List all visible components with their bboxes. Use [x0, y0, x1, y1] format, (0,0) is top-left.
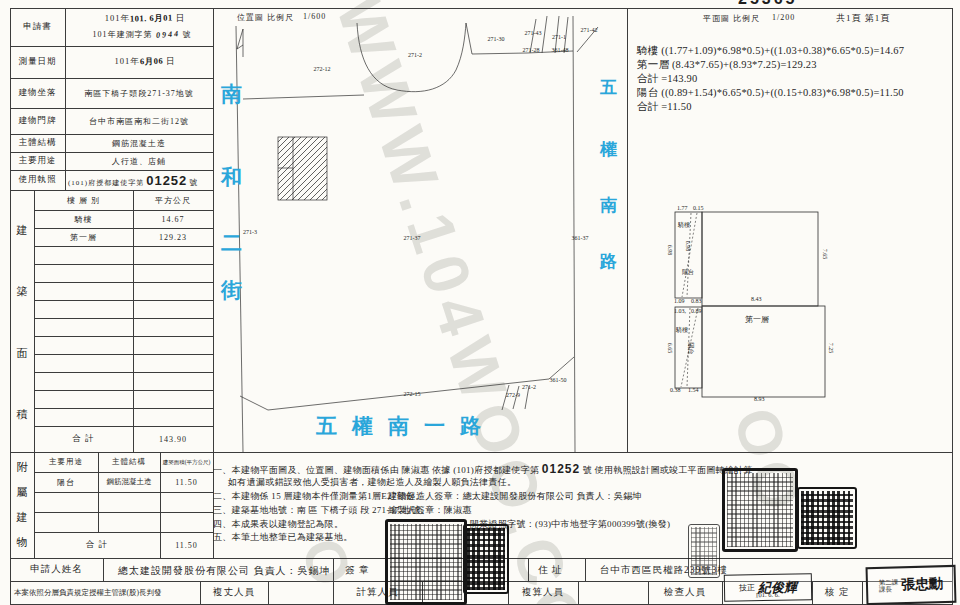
plan-dimension-label: 騎樓 — [676, 326, 688, 335]
street-name-left: 街 — [221, 276, 242, 304]
grid-line — [578, 581, 579, 604]
grid-line — [34, 354, 213, 355]
date-stamp: 6月06 — [140, 56, 164, 69]
grid-line — [528, 558, 529, 581]
grid-line — [34, 282, 213, 283]
area-row-floor: 騎樓 — [34, 210, 133, 228]
subject-building-hatched — [278, 137, 327, 200]
license-seal — [688, 524, 720, 578]
street-name-left: 二 — [221, 229, 242, 257]
building-location: 南區下橋子頭段271-37地號 — [67, 78, 211, 108]
street-name-bottom: 五權南一路 — [316, 412, 496, 440]
note-1: 一、本建物平面圖及、位置圖、建物面積係由 陳淑惠 依據 (101)府授都建使字第… — [213, 462, 753, 477]
grid-line — [34, 336, 213, 337]
parcel-number-label: 271-43 — [525, 30, 542, 36]
grid-line — [952, 8, 953, 605]
grid-line — [34, 246, 213, 247]
page-count: 共1頁 第1頁 — [836, 12, 890, 25]
grid-line — [34, 300, 213, 301]
grid-line — [34, 408, 213, 409]
plan-dimension-label: 8.93 — [754, 396, 765, 402]
plan-scale-label: 平面圖 比例尺 — [703, 13, 760, 24]
plan-dimension-label: 陽台 — [686, 343, 695, 355]
plan-dimension-label: 0.15 — [693, 205, 704, 211]
parcel-number-label: 361-48 — [552, 47, 569, 53]
north-arrow — [237, 29, 243, 57]
surveyor-seal — [722, 468, 798, 552]
parcel-number-label: 361-37 — [572, 235, 589, 241]
parcel-number-label: 272-9 — [506, 392, 520, 398]
handwritten-number: 0944 — [155, 29, 180, 40]
grid-line — [862, 581, 863, 604]
parcel-number-label: 361-50 — [550, 377, 567, 383]
note-4: 四、本成果表以建物登記為限。 — [213, 518, 343, 531]
grid-line — [10, 8, 952, 9]
field-label-building-location: 建物坐落 — [10, 78, 65, 108]
field-label-main-use: 主要用途 — [10, 152, 65, 170]
applicant-name-label: 申請人姓名 — [10, 558, 103, 581]
address-label: 住 址 — [538, 564, 562, 577]
grid-line — [103, 558, 104, 581]
grid-line — [34, 492, 213, 493]
applicant-name-value: 總太建設開發股份有限公司 負責人：吳錫坤 — [118, 564, 331, 578]
building-address: 台中市南區南和二街12號 — [67, 108, 211, 134]
inspection-staff-label: 檢查人員 — [648, 581, 722, 604]
field-label-application: 申請書 — [10, 8, 65, 46]
calc-line: 陽台 ((0.89+1.54)*6.65*0.5)+((0.15+0.83)*6… — [637, 86, 904, 100]
parcel-number-label: 271-30 — [488, 36, 505, 42]
plan-dimension-label: 0.38 — [670, 387, 681, 393]
parcel-number-label: 272-15 — [404, 391, 421, 397]
approver-stamp: 第二課 課長 張忠勳 — [866, 565, 957, 605]
street-name-left: 和 — [221, 163, 242, 191]
grid-line — [585, 558, 586, 581]
main-structure: 鋼筋混凝土造 — [67, 134, 211, 152]
calc-line: 騎樓 ((1.77+1.09)*6.98*0.5)+((1.03+0.38)*6… — [637, 44, 904, 58]
street-name-right: 南 — [600, 194, 617, 217]
parcel-number-label: 271-42 — [581, 27, 598, 33]
location-map-title: 位置圖 比例尺 — [237, 12, 294, 23]
parcel-number-label: 271-1 — [552, 34, 566, 40]
plan-dimension-label: 0.83 — [691, 298, 702, 304]
annex-row-use: 陽台 — [34, 472, 98, 492]
street-name-right: 路 — [600, 250, 617, 273]
resurvey-staff-label: 複丈人員 — [200, 581, 268, 604]
inspector-date: 101. 6. 6. — [755, 591, 779, 598]
plan-dimension-label: 第一層 — [745, 314, 769, 325]
grid-line — [34, 512, 213, 513]
area-col-floor: 樓 層 別 — [34, 190, 133, 210]
area-table-side-label: 建 築 面 積 — [10, 200, 34, 445]
annex-table-side-label: 附 屬 建 物 — [10, 455, 34, 555]
plan-dimension-label: 6.98 — [667, 245, 673, 256]
note-permit-number: 01252 — [542, 462, 580, 476]
authorization-note: 本案依照分層負責規定授權主管課(股)長判發 — [14, 588, 162, 598]
parcel-number-label: 271-2 — [522, 384, 536, 390]
approver-title: 課長 — [879, 585, 899, 593]
plan-dimension-label: 8.43 — [751, 296, 762, 302]
annex-col-use: 主要用途 — [34, 452, 98, 472]
area-col-sqm: 平方公尺 — [133, 190, 213, 210]
use-permit-number: (101)府授都建使字第 01252 號 — [68, 173, 213, 188]
street-name-left: 南 — [221, 80, 242, 108]
plan-dimension-label: 7.65 — [822, 249, 828, 260]
plan-scale-value: 1/200 — [772, 13, 795, 22]
survey-date: 101年6月06 日 — [80, 56, 210, 68]
cut-off-number: 25365 — [738, 0, 828, 8]
annex-col-structure: 主體結構 — [98, 452, 160, 472]
personal-seal — [463, 524, 509, 594]
street-name-right: 五 — [600, 76, 617, 99]
annex-total-value: 11.50 — [160, 532, 213, 558]
grid-line — [65, 8, 66, 190]
approval-label: 核 定 — [812, 581, 862, 604]
application-number: 101年建測字第 0944 號 — [72, 29, 212, 40]
calc-line: 合計 =11.50 — [637, 100, 904, 114]
parcel-number-label: 271-2 — [408, 52, 422, 58]
parcel-number-label: 272-12 — [314, 66, 331, 72]
plan-dimension-label: 7.25 — [828, 343, 834, 354]
plan-dimension-label: 1.54 — [688, 387, 699, 393]
area-row-value: 14.67 — [133, 210, 213, 228]
permit-big-number: 01252 — [146, 173, 187, 188]
company-seal — [385, 519, 467, 605]
calc-line: 第一層 (8.43*7.65)+(8.93*7.25)=129.23 — [637, 58, 904, 72]
field-label-survey-date: 測量日期 — [10, 46, 65, 78]
approver-name: 張忠勳 — [901, 575, 943, 594]
application-date: 101年101. 6月01 日 — [80, 13, 210, 25]
note-5: 五、本筆土地整筆已為建築基地。 — [213, 531, 353, 544]
grid-line — [627, 8, 628, 452]
grid-line — [333, 558, 334, 581]
plan-dimension-label: 1.03, — [674, 308, 686, 314]
inspector-stamp: 技正 紀俊輝 101. 6. 6. — [724, 573, 812, 602]
plan-dimension-label: 1.77 — [677, 205, 688, 211]
street-name-right: 權 — [600, 138, 617, 161]
area-total-label: 合 計 — [34, 426, 133, 452]
calc-line: 合計 =143.90 — [637, 72, 904, 86]
plan-dimension-label: 6.98 — [685, 241, 691, 252]
annex-row-structure: 鋼筋混凝土造 — [98, 472, 160, 492]
field-label-use-permit: 使用執照 — [10, 170, 65, 190]
area-row-value: 129.23 — [133, 228, 213, 246]
location-map-scale: 1/600 — [303, 12, 326, 21]
field-label-building-address: 建物門牌 — [10, 108, 65, 134]
area-row-floor: 第一層 — [34, 228, 133, 246]
parcel-number-label: 271-37 — [404, 235, 421, 241]
grid-line — [34, 390, 213, 391]
plan-dimension-label: 0.89 — [691, 308, 702, 314]
grid-line — [34, 372, 213, 373]
annex-row-area: 11.50 — [160, 472, 213, 492]
grid-line — [34, 264, 213, 265]
recheck-staff-label: 複算人員 — [508, 581, 578, 604]
floor-plan-drawing — [650, 198, 910, 413]
annex-total-label: 合 計 — [34, 532, 160, 558]
signature-label: 簽 章 — [345, 564, 369, 577]
plan-dimension-label: 6.65 — [667, 343, 673, 354]
grid-line — [34, 318, 213, 319]
grid-line — [722, 581, 723, 604]
area-calculations: 騎樓 ((1.77+1.09)*6.98*0.5)+((1.03+0.38)*6… — [637, 44, 904, 114]
main-use: 人行道、店鋪 — [67, 152, 211, 170]
note-2-right: 建物起造人簽章：總太建設開發股份有限公司 負責人：吳錫坤 — [388, 490, 642, 503]
note-3-right: 繪製人簽章：陳淑惠 — [388, 504, 472, 517]
firm-seal — [797, 487, 857, 549]
area-total-value: 143.90 — [133, 426, 213, 452]
note-1b: 如有遺漏或錯誤致他人受損害者，建物起造人及繪製人願負法律責任。 — [228, 476, 516, 489]
parcel-number-label: 271-28 — [523, 47, 540, 53]
plan-dimension-label: 騎樓 — [678, 221, 690, 230]
parcel-number-label: 271-3 — [243, 229, 257, 235]
plan-dimension-label: 陽台 — [682, 268, 694, 277]
grid-line — [268, 581, 269, 604]
survey-document-page: WWW.104WOO.CO O OO 25365 平面圖 比例尺 1/200 共… — [0, 0, 960, 605]
plan-dimension-label: 1.09 — [674, 298, 685, 304]
annex-col-area: 建築面積(平方公尺) — [160, 452, 213, 472]
date-stamp: 101. 6月01 — [130, 12, 173, 25]
field-label-structure: 主體結構 — [10, 134, 65, 152]
